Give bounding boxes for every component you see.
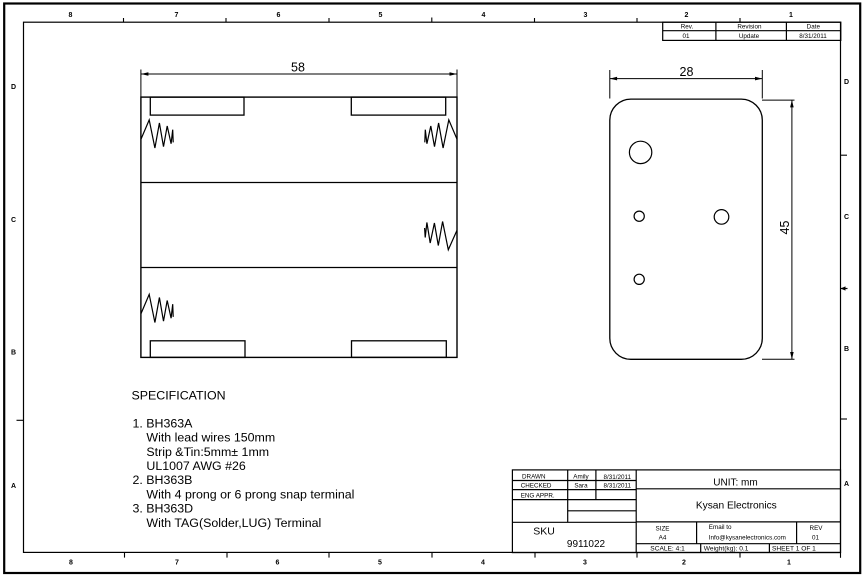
svg-text:1: 1 xyxy=(789,12,793,19)
svg-text:2. BH363B: 2. BH363B xyxy=(133,473,193,487)
svg-text:CHECKED: CHECKED xyxy=(521,483,552,490)
svg-text:6: 6 xyxy=(276,560,280,567)
svg-text:58: 58 xyxy=(291,61,305,75)
svg-text:REV: REV xyxy=(810,525,824,532)
svg-text:2: 2 xyxy=(685,12,689,19)
svg-text:9911022: 9911022 xyxy=(567,539,606,550)
svg-text:01: 01 xyxy=(682,33,690,40)
svg-text:8: 8 xyxy=(69,12,73,19)
svg-text:01: 01 xyxy=(812,534,820,541)
svg-text:8/31/2011: 8/31/2011 xyxy=(799,33,827,40)
svg-text:SCALE: 4:1: SCALE: 4:1 xyxy=(650,545,685,552)
svg-text:3: 3 xyxy=(584,12,588,19)
svg-text:Email to: Email to xyxy=(709,524,732,531)
svg-text:1: 1 xyxy=(787,560,791,567)
svg-text:Update: Update xyxy=(739,33,760,40)
svg-text:UL1007 AWG #26: UL1007 AWG #26 xyxy=(146,459,246,473)
svg-text:D: D xyxy=(11,84,16,91)
svg-text:Info@kysanelectronics.com: Info@kysanelectronics.com xyxy=(709,534,786,541)
svg-text:4: 4 xyxy=(481,560,485,567)
svg-text:With lead wires 150mm: With lead wires 150mm xyxy=(146,431,275,445)
svg-text:7: 7 xyxy=(175,12,179,19)
svg-text:A: A xyxy=(11,483,16,490)
svg-text:6: 6 xyxy=(277,12,281,19)
svg-text:C: C xyxy=(844,214,849,221)
svg-text:Strip &Tin:5mm± 1mm: Strip &Tin:5mm± 1mm xyxy=(146,445,269,459)
svg-text:8/31/2011: 8/31/2011 xyxy=(604,474,632,481)
svg-text:28: 28 xyxy=(680,65,694,79)
svg-text:2: 2 xyxy=(682,560,686,567)
svg-text:SIZE: SIZE xyxy=(656,525,670,532)
svg-text:B: B xyxy=(844,346,849,353)
svg-text:Date: Date xyxy=(807,24,821,31)
svg-text:Revision: Revision xyxy=(737,24,762,31)
svg-text:5: 5 xyxy=(378,560,382,567)
svg-text:With TAG(Solder,LUG) Terminal: With TAG(Solder,LUG) Terminal xyxy=(146,516,321,530)
svg-text:With 4 prong or 6 prong snap t: With 4 prong or 6 prong snap terminal xyxy=(146,487,354,501)
svg-text:ENG APPR.: ENG APPR. xyxy=(521,493,555,500)
svg-text:7: 7 xyxy=(175,560,179,567)
svg-text:A: A xyxy=(844,481,849,488)
svg-text:UNIT: mm: UNIT: mm xyxy=(713,477,757,488)
svg-text:45: 45 xyxy=(778,221,792,235)
svg-text:1. BH363A: 1. BH363A xyxy=(133,416,194,430)
svg-text:Amily: Amily xyxy=(573,474,589,481)
svg-text:Rev.: Rev. xyxy=(681,24,694,31)
svg-text:5: 5 xyxy=(379,12,383,19)
svg-text:SKU: SKU xyxy=(533,526,555,538)
svg-text:4: 4 xyxy=(482,12,486,19)
svg-text:Weight(kg): 0.1: Weight(kg): 0.1 xyxy=(704,545,749,552)
svg-text:3. BH363D: 3. BH363D xyxy=(133,502,194,516)
svg-text:SPECIFICATION: SPECIFICATION xyxy=(132,388,226,402)
svg-text:Kysan Electronics: Kysan Electronics xyxy=(696,500,777,511)
svg-text:SHEET 1 OF 1: SHEET 1 OF 1 xyxy=(772,545,816,552)
svg-text:A4: A4 xyxy=(659,534,667,541)
svg-text:D: D xyxy=(844,79,849,86)
svg-text:C: C xyxy=(11,217,16,224)
svg-text:3: 3 xyxy=(583,560,587,567)
svg-text:DRAWN: DRAWN xyxy=(522,473,546,480)
svg-text:8/31/2011: 8/31/2011 xyxy=(604,482,632,489)
svg-text:8: 8 xyxy=(69,560,73,567)
svg-text:Sara: Sara xyxy=(574,483,588,490)
svg-text:B: B xyxy=(11,350,16,357)
